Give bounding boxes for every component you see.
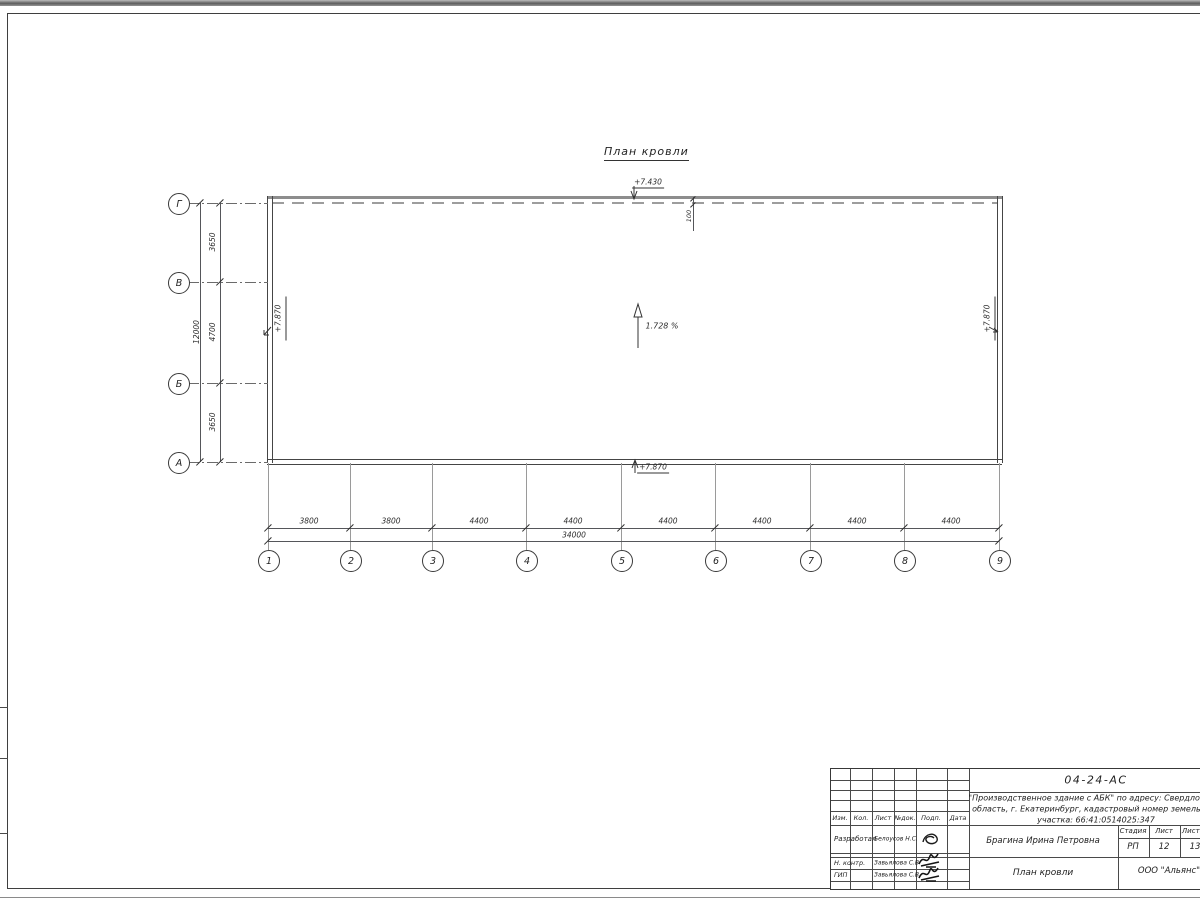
axis-bubble-number: 4 bbox=[516, 550, 538, 572]
dim-value: 3800 bbox=[299, 517, 318, 526]
axis-bubble-letter: А bbox=[168, 452, 190, 474]
leader-arrow-up-icon bbox=[630, 460, 640, 473]
slope-value: 1.728 % bbox=[645, 322, 678, 331]
dim-value: 3650 bbox=[206, 402, 218, 442]
axis-bubble-number: 5 bbox=[611, 550, 633, 572]
dim-line-left-segments bbox=[220, 203, 221, 462]
tb-col-header: Дата bbox=[950, 814, 967, 822]
dim-value: 100 bbox=[684, 206, 694, 226]
tb-name: Завьялова С.В bbox=[874, 860, 919, 867]
dim-value: 4400 bbox=[847, 517, 866, 526]
drawing-title: План кровли bbox=[604, 145, 689, 161]
tb-col-header: Кол. bbox=[854, 814, 869, 822]
tb-grid-line bbox=[872, 769, 873, 889]
dim-line-bottom-total bbox=[268, 541, 999, 542]
axis-bubble-number: 8 bbox=[894, 550, 916, 572]
axis-number: 4 bbox=[524, 556, 530, 567]
dim-value: 4400 bbox=[752, 517, 771, 526]
tb-grid-line bbox=[1149, 825, 1150, 857]
axis-bubble-letter: В bbox=[168, 272, 190, 294]
leader-arrow-down-icon bbox=[629, 186, 639, 200]
tb-client: Брагина Ирина Петровна bbox=[986, 836, 1100, 846]
frame-top-line bbox=[7, 13, 1200, 14]
tb-stage-header: Листов bbox=[1182, 827, 1200, 835]
dim-value: 4400 bbox=[469, 517, 488, 526]
axis-bubble-letter: Б bbox=[168, 373, 190, 395]
dim-value: 3650 bbox=[206, 222, 218, 262]
grid-line-9 bbox=[999, 463, 1000, 550]
tb-grid-line bbox=[831, 869, 969, 870]
axis-number: 5 bbox=[619, 556, 625, 567]
axis-number: 9 bbox=[997, 556, 1003, 567]
axis-bubble-number: 9 bbox=[989, 550, 1011, 572]
tb-stage-header: Стадия bbox=[1120, 827, 1147, 835]
elevation-mark-bottom: +7.870 bbox=[637, 463, 669, 474]
title-block: Изм. Кол. Лист №док. Подп. Дата Разработ… bbox=[830, 768, 1200, 890]
drawing-sheet: { "drawing": { "title": "План кровли", "… bbox=[0, 0, 1200, 900]
tb-grid-line bbox=[831, 881, 969, 882]
leader-arrow-icon bbox=[989, 326, 999, 335]
tb-col-header: Изм. bbox=[832, 814, 847, 822]
grid-line-2 bbox=[350, 463, 351, 550]
tb-stage-value: РП bbox=[1127, 842, 1139, 852]
dim-value: 4700 bbox=[206, 312, 218, 352]
tb-project-line: область, г. Екатеринбург, кадастровый но… bbox=[972, 805, 1200, 814]
tb-doc-number: 04-24-АС bbox=[1064, 774, 1127, 787]
signature-icon bbox=[920, 830, 944, 848]
frame-left-tick bbox=[0, 833, 8, 834]
page-top-edge bbox=[0, 0, 1200, 6]
tb-project-line: "Производственное здание с АБК" по адрес… bbox=[968, 794, 1200, 803]
grid-line-7 bbox=[810, 463, 811, 550]
tb-col-header: Лист bbox=[875, 814, 891, 822]
grid-line-6 bbox=[715, 463, 716, 550]
dim-value: 4400 bbox=[941, 517, 960, 526]
grid-line-1 bbox=[268, 463, 269, 550]
axis-number: 1 bbox=[266, 556, 272, 567]
axis-number: 8 bbox=[902, 556, 908, 567]
axis-bubble-number: 3 bbox=[422, 550, 444, 572]
axis-number: 2 bbox=[348, 556, 354, 567]
axis-bubble-letter: Г bbox=[168, 193, 190, 215]
tb-grid-line bbox=[831, 800, 969, 801]
dim-total: 34000 bbox=[562, 531, 586, 540]
axis-letter: Г bbox=[176, 199, 181, 210]
page-bottom-edge bbox=[0, 897, 1200, 898]
frame-left-tick bbox=[0, 758, 8, 759]
tb-grid-line bbox=[1180, 825, 1181, 857]
tb-grid-line bbox=[969, 769, 970, 889]
axis-bubble-number: 2 bbox=[340, 550, 362, 572]
hidden-wall-dashed-line bbox=[272, 202, 998, 204]
elevation-mark-left: +7.870 bbox=[272, 297, 287, 341]
tb-grid-line bbox=[947, 769, 948, 889]
tb-sheet-value: 12 bbox=[1159, 842, 1170, 852]
grid-line-5 bbox=[621, 463, 622, 550]
frame-left-tick bbox=[0, 707, 8, 708]
tb-role: Разработал bbox=[834, 835, 876, 843]
dim-line-bottom-segments bbox=[268, 528, 999, 529]
signature-icon bbox=[917, 864, 945, 884]
tb-sheet-title: План кровли bbox=[1013, 868, 1073, 878]
tb-grid-line bbox=[831, 811, 969, 812]
tb-company: ООО "Альянс" bbox=[1138, 866, 1200, 876]
axis-letter: В bbox=[176, 278, 183, 289]
tb-grid-line bbox=[831, 853, 969, 854]
tb-grid-line bbox=[850, 769, 851, 889]
tb-grid-line bbox=[831, 790, 969, 791]
axis-number: 6 bbox=[713, 556, 719, 567]
dim-value: 4400 bbox=[658, 517, 677, 526]
tb-grid-line bbox=[1118, 838, 1200, 839]
slope-arrow-icon bbox=[631, 302, 645, 350]
leader-arrow-icon bbox=[263, 327, 272, 336]
dim-value: 3800 bbox=[381, 517, 400, 526]
tb-name: Белоусов Н.С. bbox=[874, 836, 918, 843]
axis-number: 7 bbox=[808, 556, 814, 567]
axis-bubble-number: 7 bbox=[800, 550, 822, 572]
tb-grid-line bbox=[831, 780, 969, 781]
axis-bubble-number: 1 bbox=[258, 550, 280, 572]
tb-name: Завьялова С.В bbox=[874, 872, 919, 879]
tb-role: Н. контр. bbox=[834, 859, 865, 867]
tb-col-header: №док. bbox=[894, 814, 915, 822]
grid-line-4 bbox=[526, 463, 527, 550]
dim-total: 12000 bbox=[190, 312, 202, 352]
tb-role: ГИП bbox=[834, 871, 847, 879]
tb-stage-header: Лист bbox=[1155, 827, 1173, 835]
grid-line-3 bbox=[432, 463, 433, 550]
grid-line-8 bbox=[904, 463, 905, 550]
dim-value: 4400 bbox=[563, 517, 582, 526]
tb-col-header: Подп. bbox=[921, 814, 941, 822]
tb-grid-line bbox=[831, 825, 1200, 826]
axis-number: 3 bbox=[430, 556, 436, 567]
tb-project-line: участка: 66:41:0514025:347 bbox=[1037, 816, 1155, 825]
tb-grid-line bbox=[831, 857, 1200, 858]
tb-sheets-value: 13 bbox=[1190, 842, 1200, 852]
axis-letter: Б bbox=[176, 379, 183, 390]
axis-letter: А bbox=[176, 458, 183, 469]
axis-bubble-number: 6 bbox=[705, 550, 727, 572]
